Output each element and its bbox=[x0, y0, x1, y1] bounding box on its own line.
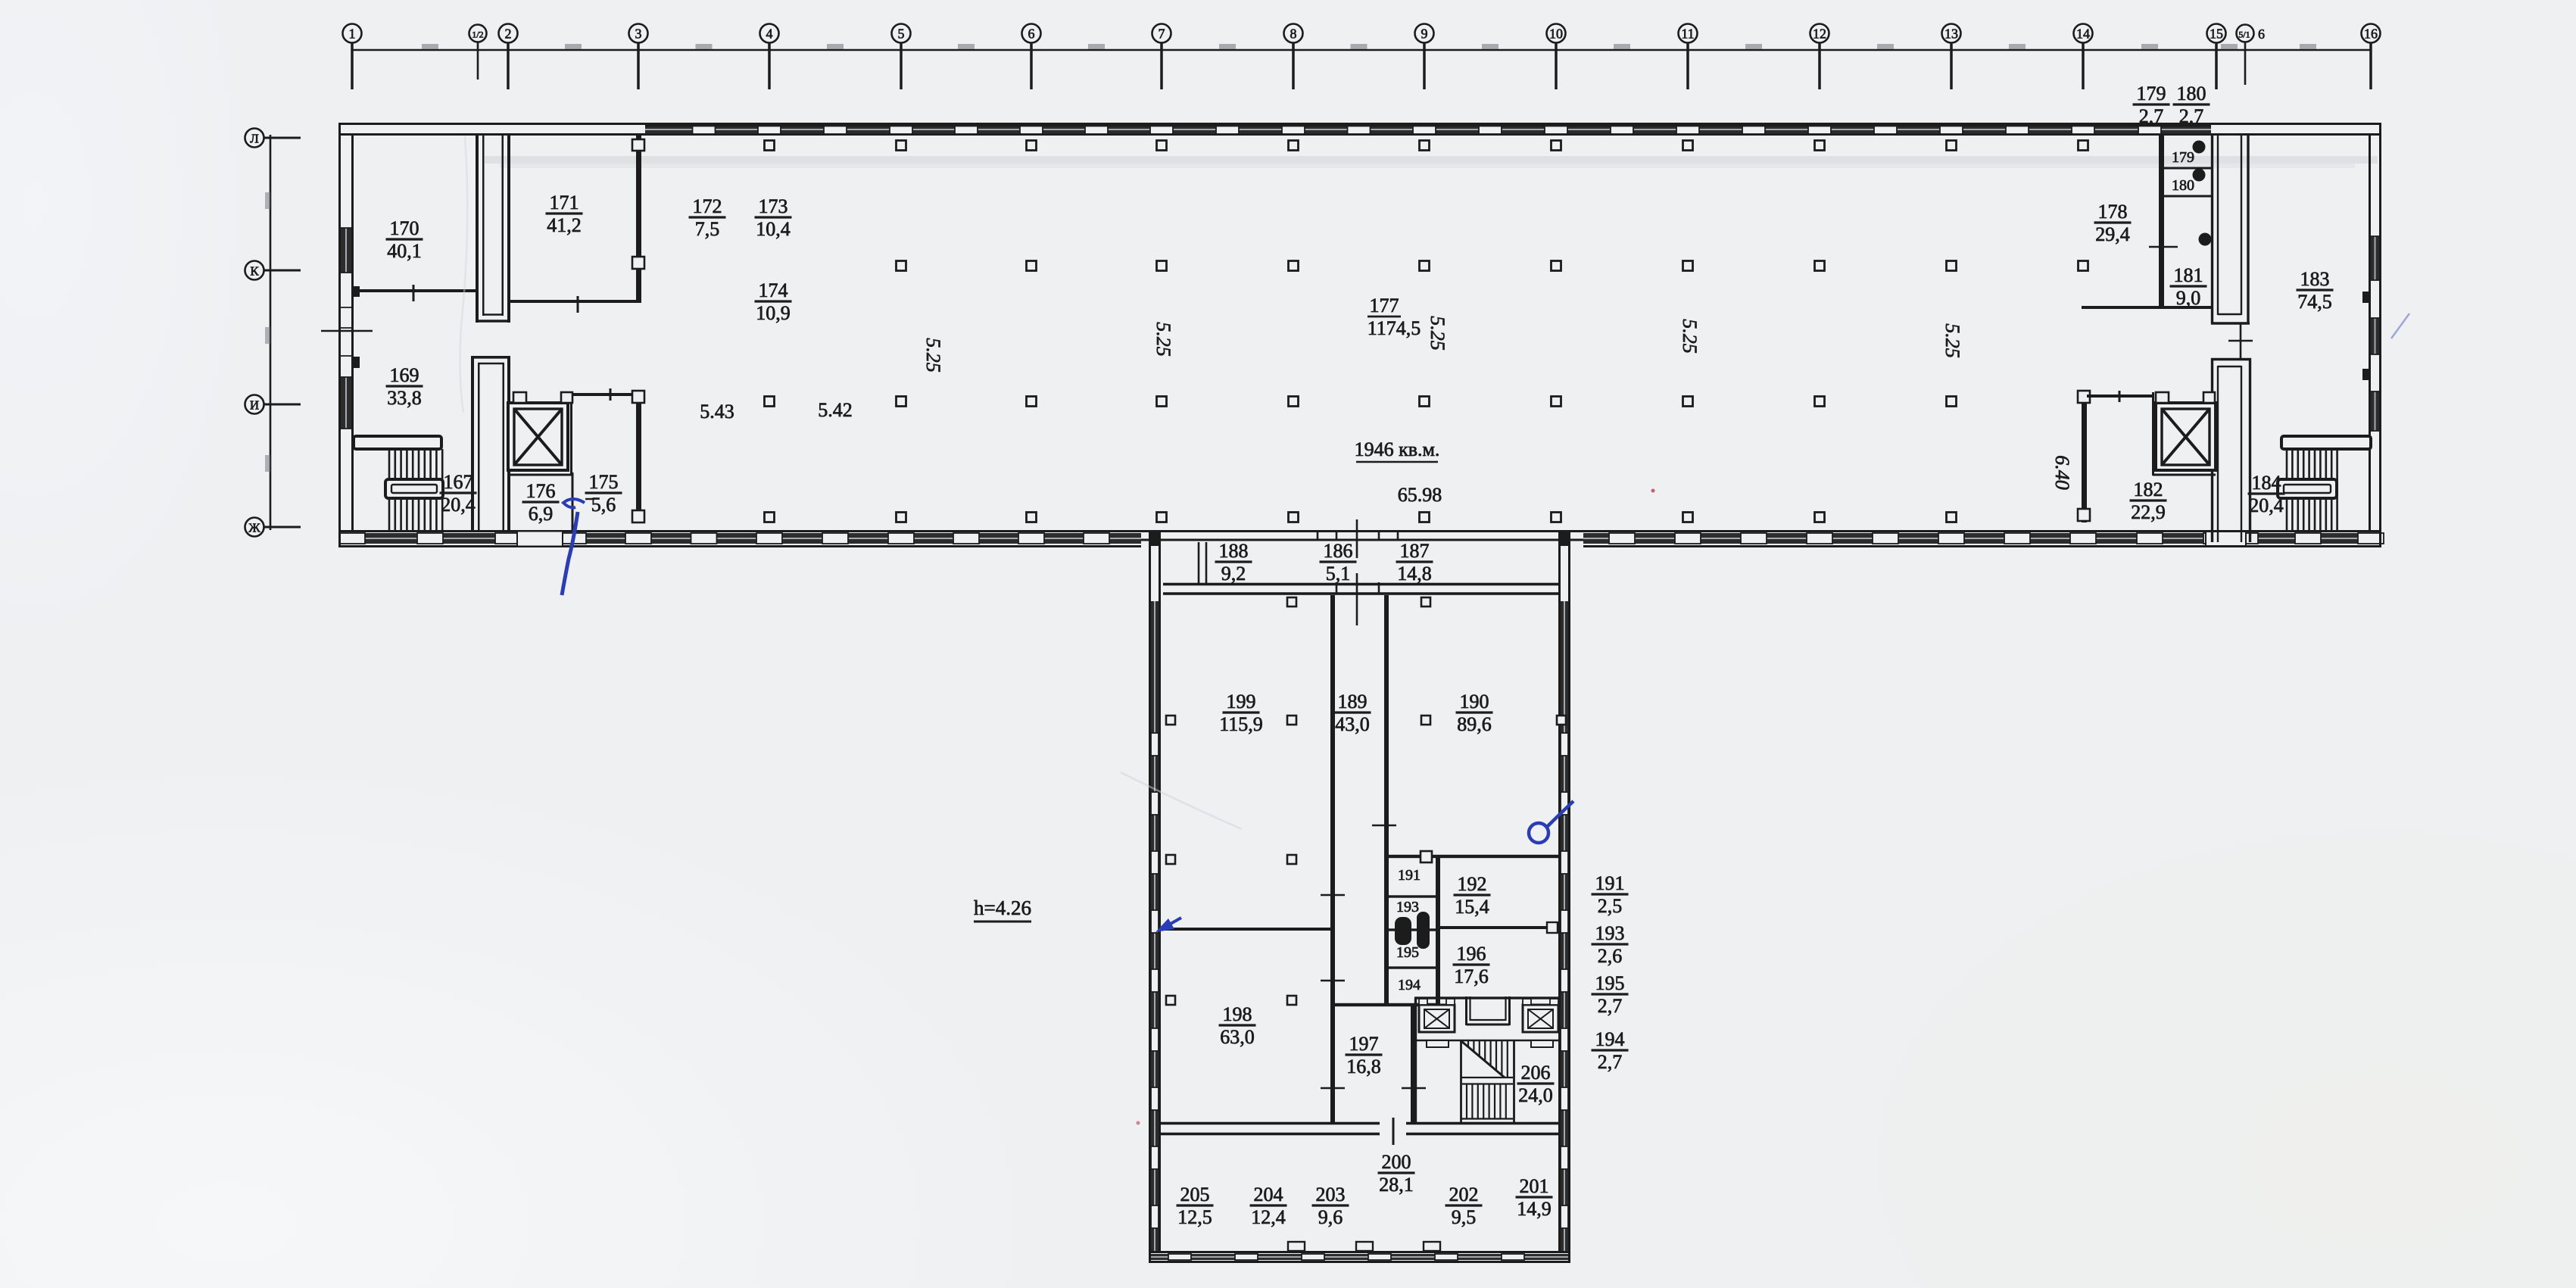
svg-text:33,8: 33,8 bbox=[387, 387, 422, 409]
svg-text:5.43: 5.43 bbox=[700, 401, 734, 423]
svg-text:186: 186 bbox=[1324, 540, 1353, 562]
svg-text:5.25: 5.25 bbox=[1941, 323, 1963, 358]
svg-text:9,2: 9,2 bbox=[1221, 563, 1246, 585]
svg-text:5.25: 5.25 bbox=[1427, 316, 1449, 351]
svg-text:15,4: 15,4 bbox=[1455, 896, 1489, 918]
svg-text:183: 183 bbox=[2300, 268, 2330, 290]
svg-text:171: 171 bbox=[550, 192, 579, 214]
svg-text:14,9: 14,9 bbox=[1517, 1198, 1552, 1220]
svg-text:196: 196 bbox=[1457, 943, 1486, 965]
svg-text:Л: Л bbox=[250, 132, 259, 146]
svg-text:2,7: 2,7 bbox=[1598, 1051, 1623, 1073]
svg-text:5: 5 bbox=[898, 27, 905, 42]
svg-text:12: 12 bbox=[1813, 27, 1826, 42]
svg-text:191: 191 bbox=[1595, 872, 1625, 894]
svg-text:10: 10 bbox=[1549, 27, 1563, 42]
svg-text:187: 187 bbox=[1400, 540, 1430, 562]
svg-text:1946 кв.м.: 1946 кв.м. bbox=[1355, 438, 1440, 460]
svg-text:43,0: 43,0 bbox=[1335, 713, 1370, 735]
svg-text:5.25: 5.25 bbox=[922, 338, 944, 373]
svg-text:2,7: 2,7 bbox=[2179, 105, 2204, 127]
svg-text:1: 1 bbox=[349, 27, 356, 42]
svg-text:3: 3 bbox=[635, 27, 642, 42]
svg-text:192: 192 bbox=[1458, 873, 1487, 895]
svg-text:89,6: 89,6 bbox=[1457, 713, 1492, 735]
svg-text:15: 15 bbox=[2210, 27, 2223, 42]
svg-text:20,4: 20,4 bbox=[2249, 494, 2284, 516]
svg-text:199: 199 bbox=[1227, 691, 1256, 713]
svg-text:194: 194 bbox=[1398, 977, 1421, 993]
svg-text:16,8: 16,8 bbox=[1346, 1056, 1381, 1077]
svg-text:2,7: 2,7 bbox=[1598, 995, 1623, 1017]
svg-text:200: 200 bbox=[1382, 1151, 1411, 1173]
svg-text:7,5: 7,5 bbox=[695, 218, 720, 240]
svg-text:8: 8 bbox=[1290, 27, 1297, 42]
svg-text:29,4: 29,4 bbox=[2095, 223, 2130, 245]
svg-text:14,8: 14,8 bbox=[1397, 563, 1432, 585]
svg-text:188: 188 bbox=[1219, 540, 1249, 562]
svg-text:И: И bbox=[250, 398, 259, 413]
svg-text:169: 169 bbox=[390, 364, 419, 386]
svg-text:63,0: 63,0 bbox=[1220, 1026, 1255, 1048]
svg-text:178: 178 bbox=[2098, 201, 2128, 223]
svg-text:174: 174 bbox=[759, 279, 788, 301]
svg-text:194: 194 bbox=[1595, 1028, 1625, 1050]
svg-text:24,0: 24,0 bbox=[1518, 1084, 1553, 1106]
svg-text:175: 175 bbox=[589, 471, 619, 493]
svg-text:202: 202 bbox=[1449, 1184, 1479, 1205]
svg-text:195: 195 bbox=[1396, 944, 1419, 961]
svg-text:115,9: 115,9 bbox=[1219, 713, 1263, 735]
svg-text:41,2: 41,2 bbox=[547, 214, 582, 236]
svg-text:2,5: 2,5 bbox=[1598, 895, 1623, 917]
svg-text:6,9: 6,9 bbox=[529, 503, 554, 525]
svg-text:1174,5: 1174,5 bbox=[1368, 317, 1421, 339]
svg-text:65.98: 65.98 bbox=[1398, 484, 1442, 506]
svg-text:204: 204 bbox=[1254, 1184, 1283, 1205]
svg-text:12,5: 12,5 bbox=[1177, 1206, 1212, 1228]
svg-text:5.42: 5.42 bbox=[818, 399, 853, 421]
svg-text:189: 189 bbox=[1338, 691, 1368, 713]
svg-text:5.25: 5.25 bbox=[1152, 322, 1174, 357]
svg-text:6.40: 6.40 bbox=[2051, 455, 2073, 490]
svg-text:203: 203 bbox=[1316, 1184, 1346, 1205]
svg-text:197: 197 bbox=[1349, 1033, 1379, 1055]
svg-text:167: 167 bbox=[444, 471, 473, 493]
svg-text:5.25: 5.25 bbox=[1679, 319, 1701, 354]
svg-text:28,1: 28,1 bbox=[1379, 1174, 1414, 1196]
svg-text:9,5: 9,5 bbox=[1452, 1206, 1477, 1228]
svg-text:4: 4 bbox=[766, 27, 773, 42]
svg-text:179: 179 bbox=[2137, 83, 2166, 104]
svg-text:7: 7 bbox=[1159, 27, 1165, 42]
svg-text:14: 14 bbox=[2076, 27, 2090, 42]
svg-text:205: 205 bbox=[1180, 1184, 1210, 1205]
svg-text:5/1: 5/1 bbox=[2238, 30, 2250, 40]
svg-text:40,1: 40,1 bbox=[387, 240, 422, 262]
svg-text:20,4: 20,4 bbox=[441, 494, 476, 516]
svg-text:17,6: 17,6 bbox=[1454, 965, 1489, 987]
svg-text:11: 11 bbox=[1681, 27, 1694, 42]
svg-text:h=4.26: h=4.26 bbox=[974, 897, 1031, 919]
svg-text:2,6: 2,6 bbox=[1598, 945, 1623, 967]
svg-text:9,6: 9,6 bbox=[1318, 1206, 1343, 1228]
svg-text:6: 6 bbox=[1028, 27, 1035, 42]
svg-text:191: 191 bbox=[1398, 867, 1421, 884]
svg-text:9,0: 9,0 bbox=[2176, 287, 2201, 309]
svg-text:181: 181 bbox=[2174, 264, 2203, 286]
svg-text:10,9: 10,9 bbox=[756, 302, 791, 324]
svg-text:2,7: 2,7 bbox=[2139, 105, 2164, 127]
svg-text:195: 195 bbox=[1595, 972, 1625, 994]
svg-text:184: 184 bbox=[2252, 472, 2281, 494]
svg-text:74,5: 74,5 bbox=[2297, 291, 2332, 313]
svg-text:6: 6 bbox=[2258, 27, 2265, 42]
svg-text:180: 180 bbox=[2172, 177, 2194, 194]
svg-text:22,9: 22,9 bbox=[2131, 501, 2166, 523]
svg-text:10,4: 10,4 bbox=[756, 218, 791, 240]
svg-text:2: 2 bbox=[505, 27, 512, 42]
svg-text:13: 13 bbox=[1944, 27, 1958, 42]
svg-text:1/2: 1/2 bbox=[472, 30, 483, 40]
svg-text:193: 193 bbox=[1595, 922, 1625, 944]
svg-text:176: 176 bbox=[526, 480, 556, 502]
svg-text:206: 206 bbox=[1521, 1062, 1551, 1084]
svg-text:172: 172 bbox=[693, 195, 722, 217]
svg-text:16: 16 bbox=[2364, 27, 2378, 42]
svg-text:Ж: Ж bbox=[248, 521, 260, 535]
svg-text:5,1: 5,1 bbox=[1326, 563, 1351, 585]
svg-text:180: 180 bbox=[2177, 83, 2206, 104]
svg-text:193: 193 bbox=[1396, 899, 1419, 915]
svg-text:182: 182 bbox=[2134, 479, 2163, 501]
svg-text:9: 9 bbox=[1421, 27, 1428, 42]
svg-text:12,4: 12,4 bbox=[1251, 1206, 1286, 1228]
svg-text:190: 190 bbox=[1460, 691, 1489, 713]
svg-text:К: К bbox=[250, 264, 259, 279]
svg-text:179: 179 bbox=[2172, 149, 2194, 166]
svg-text:170: 170 bbox=[390, 217, 419, 239]
svg-text:201: 201 bbox=[1520, 1175, 1549, 1197]
svg-text:177: 177 bbox=[1370, 295, 1399, 317]
svg-text:173: 173 bbox=[759, 195, 788, 217]
svg-text:5,6: 5,6 bbox=[591, 494, 616, 516]
svg-text:198: 198 bbox=[1223, 1003, 1252, 1025]
